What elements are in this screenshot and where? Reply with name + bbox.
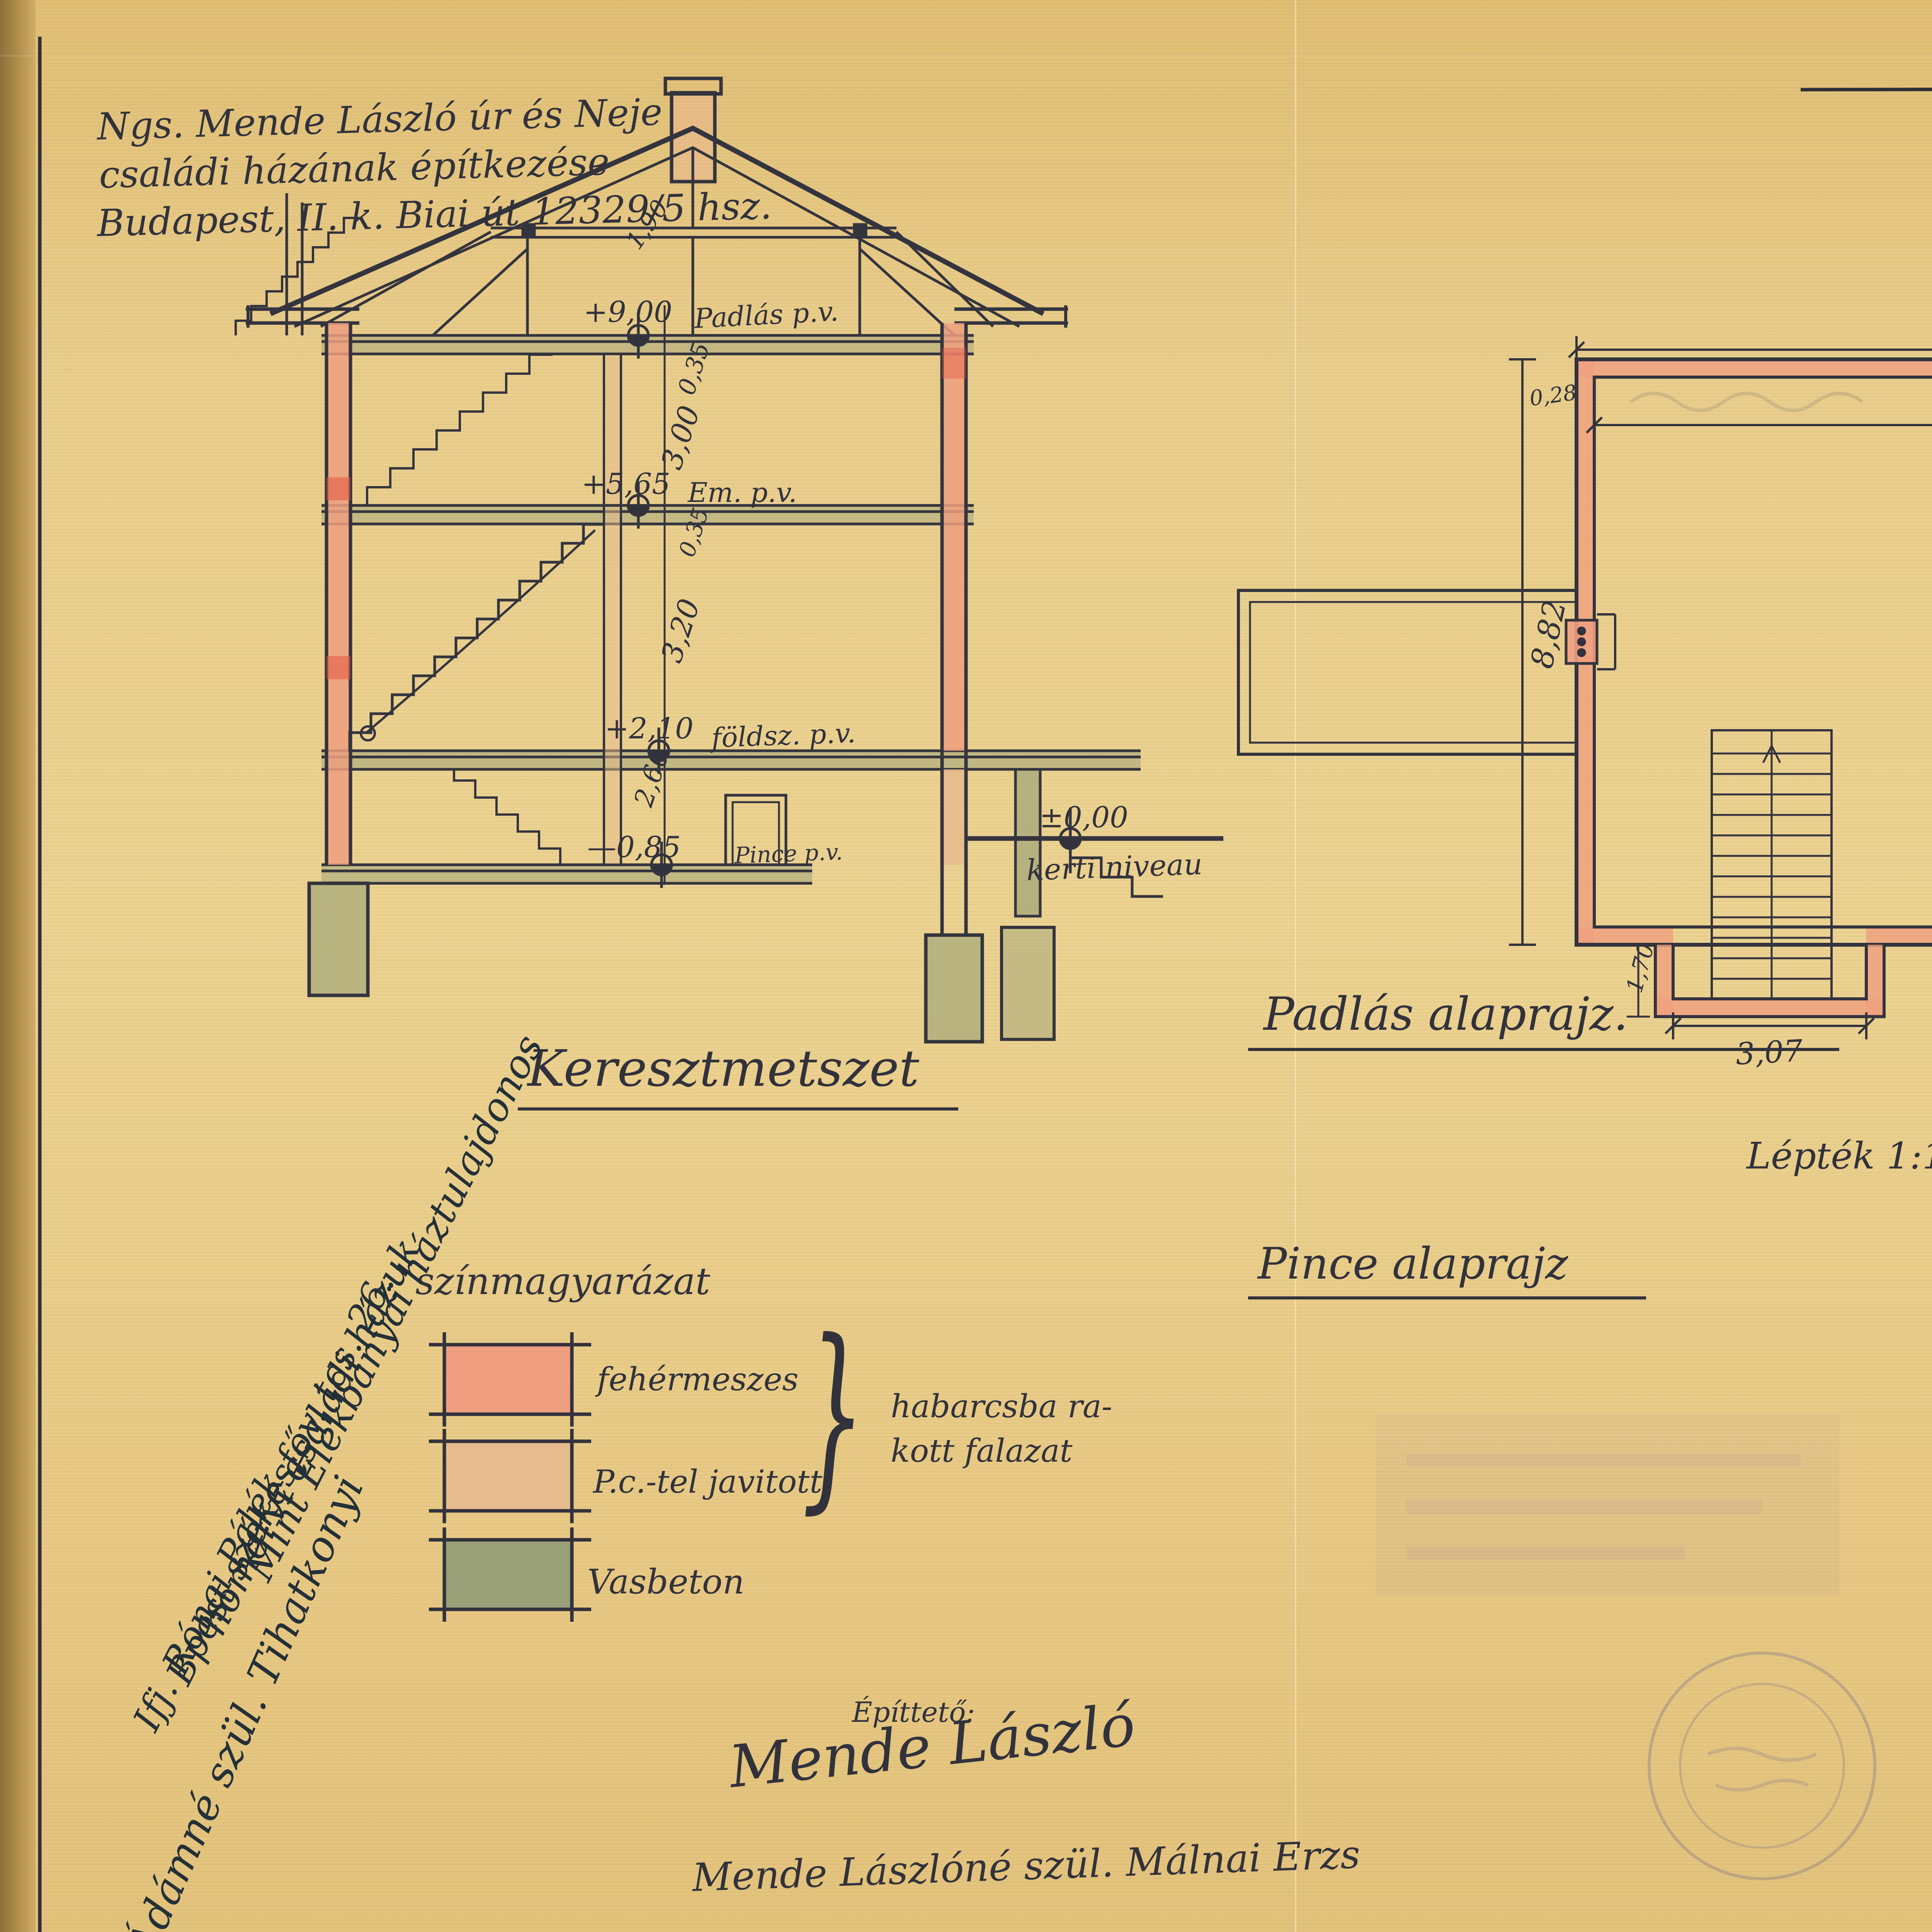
elev-floor1: +5,65: [582, 469, 670, 498]
basement-title: Pince alaprajz: [1258, 1242, 1568, 1286]
elev-attic: +9,00: [583, 298, 672, 327]
legend-item-2: P.c.-tel javitott: [593, 1466, 822, 1498]
section-title: Keresztmetszet: [527, 1043, 919, 1094]
basement-title-underline: [1248, 1296, 1646, 1299]
level-garden: kerti niveau: [1026, 850, 1203, 885]
basement-plan-drawing: [1376, 1265, 1932, 1893]
legend-item-1: fehérmeszes: [597, 1364, 799, 1396]
attic-scale: Lépték 1:100: [1747, 1138, 1932, 1175]
legend-swatches: [429, 1332, 591, 1622]
legend-title: színmagyarázat: [415, 1263, 710, 1300]
attic-title: Padlás alaprajz.: [1264, 991, 1628, 1037]
blueprint-sheet: Ngs. Mende László úr és Neje családi ház…: [0, 0, 1932, 1932]
legend-note-line1: habarcsba ra-: [891, 1391, 1112, 1423]
legend-brace: }: [802, 1314, 866, 1515]
legend-item-3: Vasbeton: [587, 1565, 745, 1599]
attic-plan-drawing: [1238, 336, 1932, 1039]
level-cellar: Pince p.v.: [734, 840, 843, 867]
level-ground: földsz. p.v.: [711, 719, 856, 752]
elev-ground: +2,10: [605, 714, 694, 743]
elev-cellar: —0,85: [587, 833, 681, 862]
level-attic: Padlás p.v.: [694, 298, 839, 332]
level-floor1: Em. p.v.: [688, 479, 797, 506]
section-title-underline: [518, 1107, 958, 1111]
attic-dim-wall-left: 0,28: [1528, 382, 1578, 410]
elev-garden: ±0,00: [1039, 803, 1128, 832]
legend-note-line2: kott falazat: [891, 1435, 1072, 1467]
attic-dim-stair-w: 3,07: [1735, 1036, 1804, 1070]
